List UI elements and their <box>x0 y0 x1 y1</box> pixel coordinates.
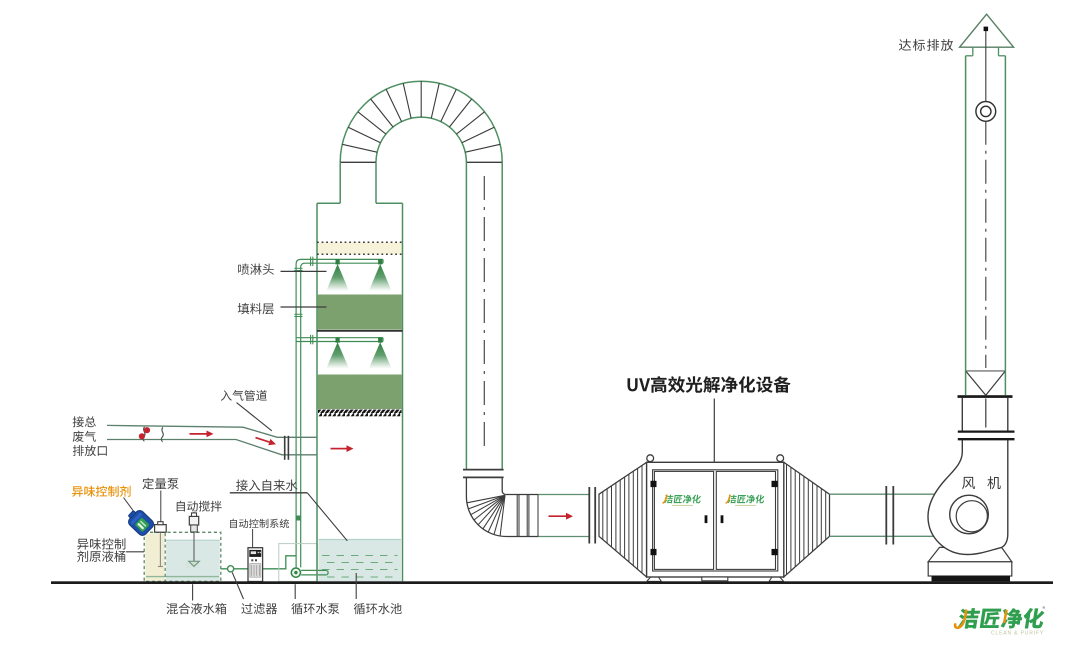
svg-text:CLEAN & PURIFY: CLEAN & PURIFY <box>991 631 1044 637</box>
